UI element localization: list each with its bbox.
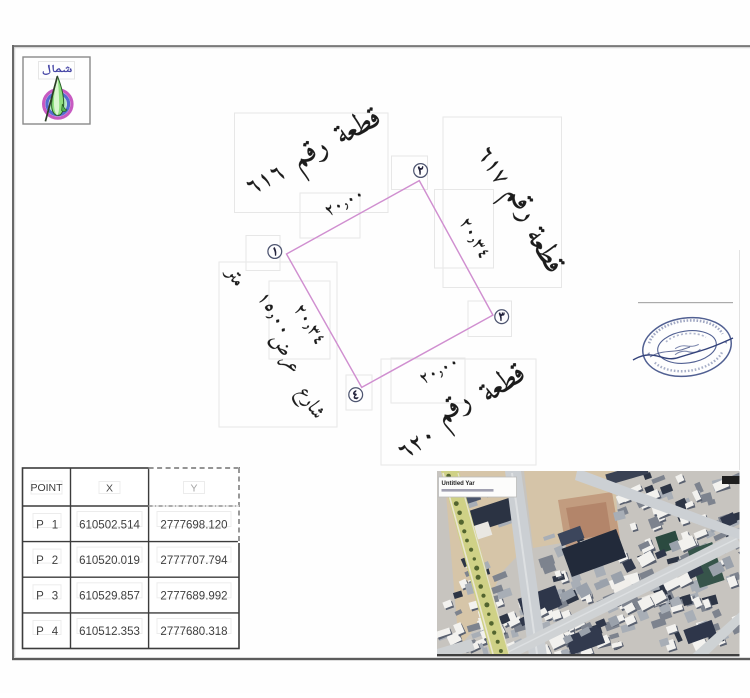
svg-text:X: X (106, 483, 113, 495)
svg-text:P: P (36, 626, 44, 638)
svg-text:P: P (36, 555, 44, 567)
svg-text:610502.514: 610502.514 (79, 519, 140, 531)
svg-text:3: 3 (52, 591, 58, 603)
svg-text:2: 2 (52, 555, 58, 567)
svg-text:1: 1 (52, 519, 58, 531)
svg-text:P: P (36, 591, 44, 603)
svg-text:2777689.992: 2777689.992 (160, 591, 227, 603)
svg-text:Y: Y (190, 483, 197, 495)
svg-text:2777698.120: 2777698.120 (160, 519, 227, 531)
svg-text:610520.019: 610520.019 (79, 555, 140, 567)
svg-text:POINT: POINT (30, 482, 63, 494)
svg-text:610529.857: 610529.857 (79, 591, 140, 603)
svg-text:P: P (36, 519, 44, 531)
svg-text:2777680.318: 2777680.318 (160, 626, 227, 638)
svg-text:4: 4 (52, 626, 59, 638)
svg-text:2777707.794: 2777707.794 (160, 555, 228, 567)
svg-text:610512.353: 610512.353 (79, 626, 140, 638)
svg-text:Untitled Yar: Untitled Yar (442, 481, 476, 487)
